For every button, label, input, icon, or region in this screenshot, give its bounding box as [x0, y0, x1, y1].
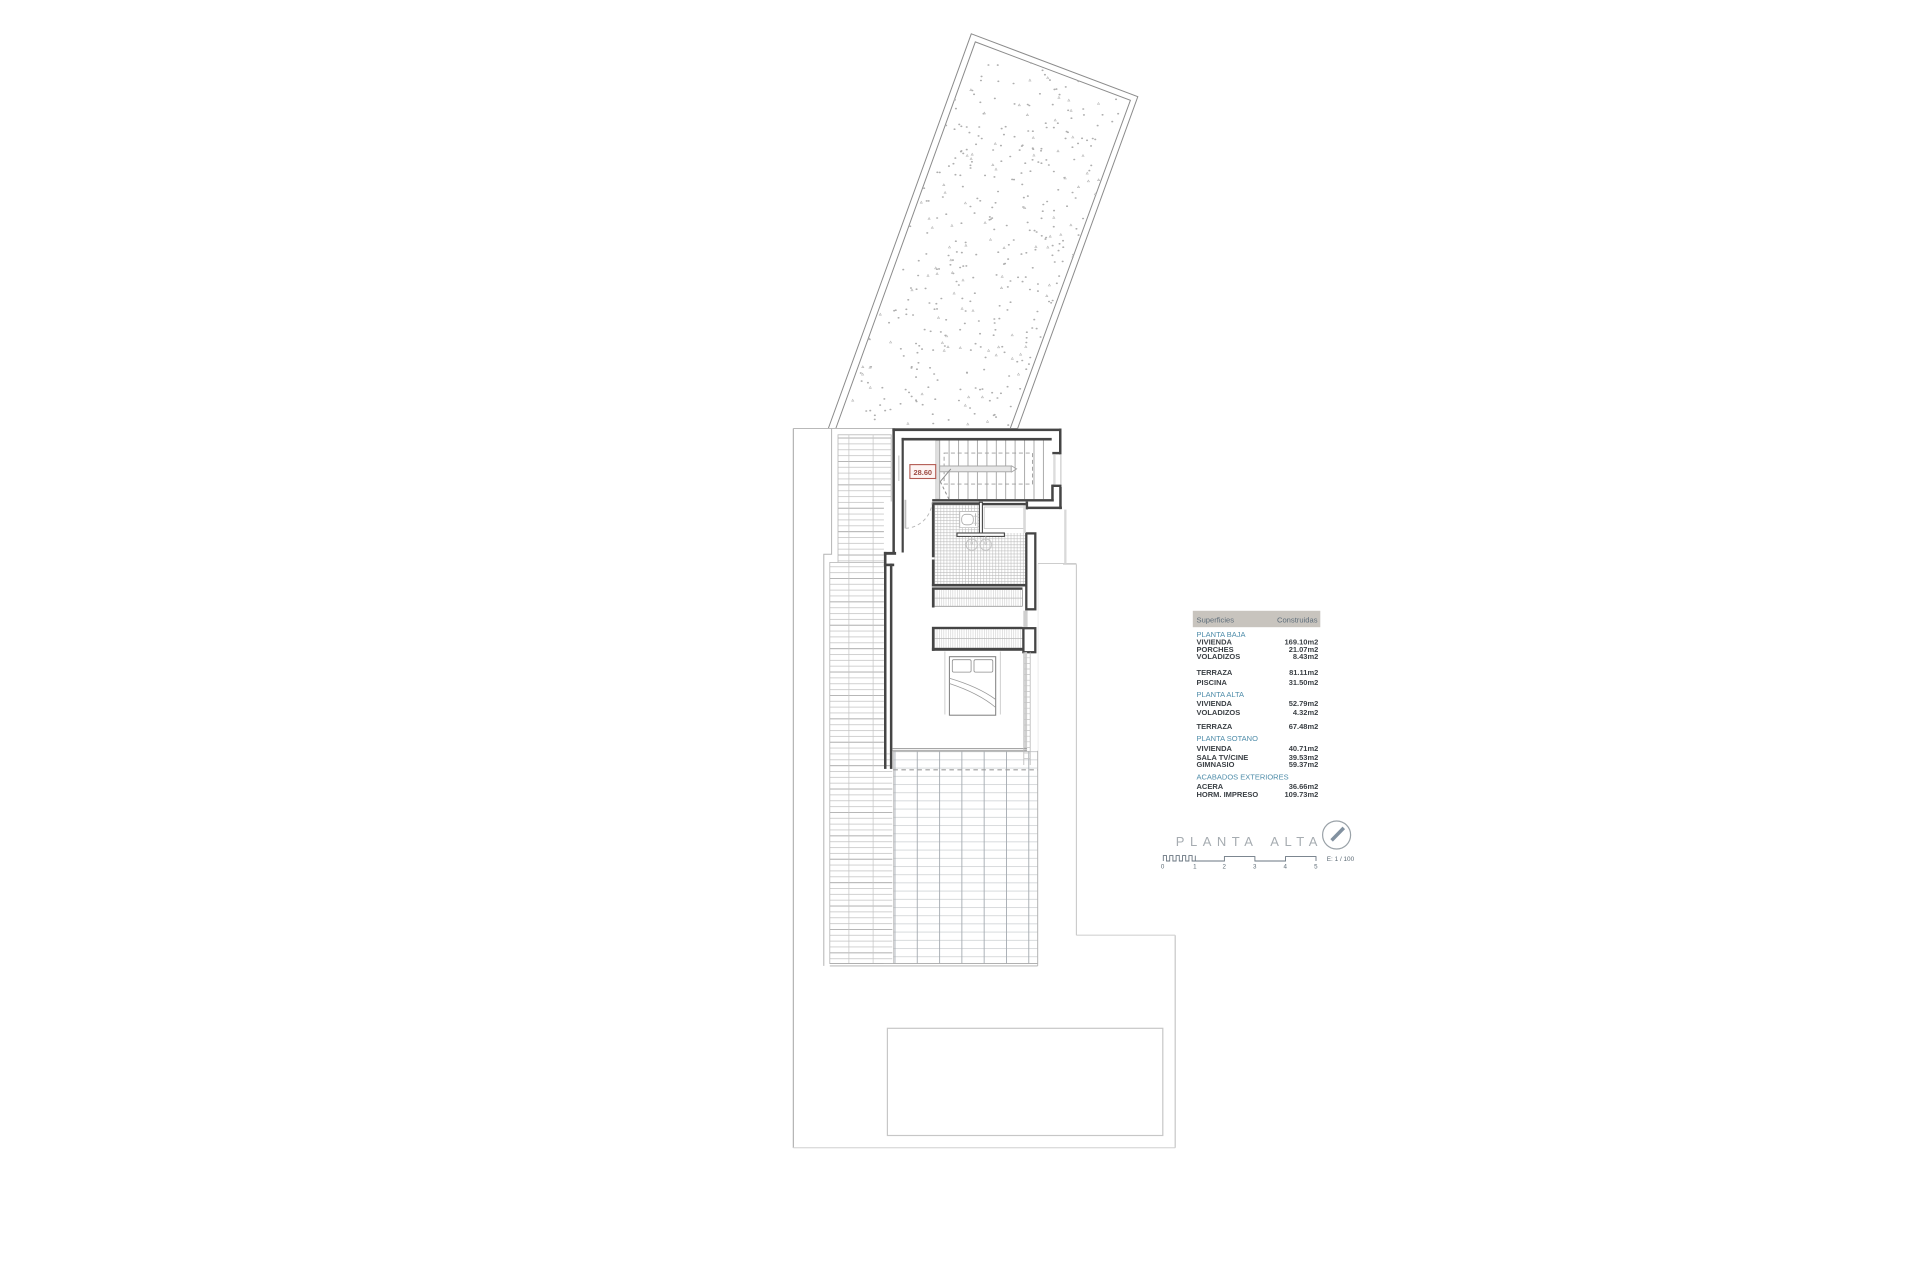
svg-text:81.11m2: 81.11m2: [1289, 668, 1318, 677]
svg-text:1: 1: [1193, 863, 1197, 870]
svg-text:3: 3: [1253, 863, 1257, 870]
svg-text:GIMNASIO: GIMNASIO: [1197, 760, 1235, 769]
svg-text:52.79m2: 52.79m2: [1289, 699, 1319, 708]
svg-text:109.73m2: 109.73m2: [1285, 790, 1319, 799]
svg-text:TERRAZA: TERRAZA: [1197, 668, 1233, 677]
svg-text:ACABADOS EXTERIORES: ACABADOS EXTERIORES: [1197, 773, 1289, 782]
svg-text:59.37m2: 59.37m2: [1289, 760, 1319, 769]
svg-text:67.48m2: 67.48m2: [1289, 722, 1319, 731]
svg-text:VIVIENDA: VIVIENDA: [1197, 744, 1233, 753]
svg-text:31.50m2: 31.50m2: [1289, 678, 1319, 687]
svg-text:PISCINA: PISCINA: [1197, 678, 1228, 687]
svg-text:PLANTA SOTANO: PLANTA SOTANO: [1197, 734, 1259, 743]
svg-text:PLANTA ALTA: PLANTA ALTA: [1197, 690, 1245, 699]
svg-text:40.71m2: 40.71m2: [1289, 744, 1319, 753]
svg-text:Superficies: Superficies: [1197, 616, 1235, 625]
svg-text:E: 1 / 100: E: 1 / 100: [1327, 856, 1355, 863]
svg-text:TERRAZA: TERRAZA: [1197, 722, 1233, 731]
svg-text:28.60: 28.60: [914, 468, 933, 477]
svg-text:VOLADIZOS: VOLADIZOS: [1197, 708, 1241, 717]
svg-text:VIVIENDA: VIVIENDA: [1197, 699, 1233, 708]
svg-text:0: 0: [1161, 863, 1165, 870]
svg-text:PLANTA ALTA: PLANTA ALTA: [1176, 834, 1323, 849]
svg-text:2: 2: [1222, 863, 1226, 870]
svg-text:Construidas: Construidas: [1277, 616, 1318, 625]
svg-text:VOLADIZOS: VOLADIZOS: [1197, 652, 1241, 661]
svg-text:8.43m2: 8.43m2: [1293, 652, 1318, 661]
svg-text:4: 4: [1283, 863, 1287, 870]
svg-text:HORM. IMPRESO: HORM. IMPRESO: [1197, 790, 1259, 799]
svg-text:5: 5: [1314, 863, 1318, 870]
svg-text:4.32m2: 4.32m2: [1293, 708, 1318, 717]
